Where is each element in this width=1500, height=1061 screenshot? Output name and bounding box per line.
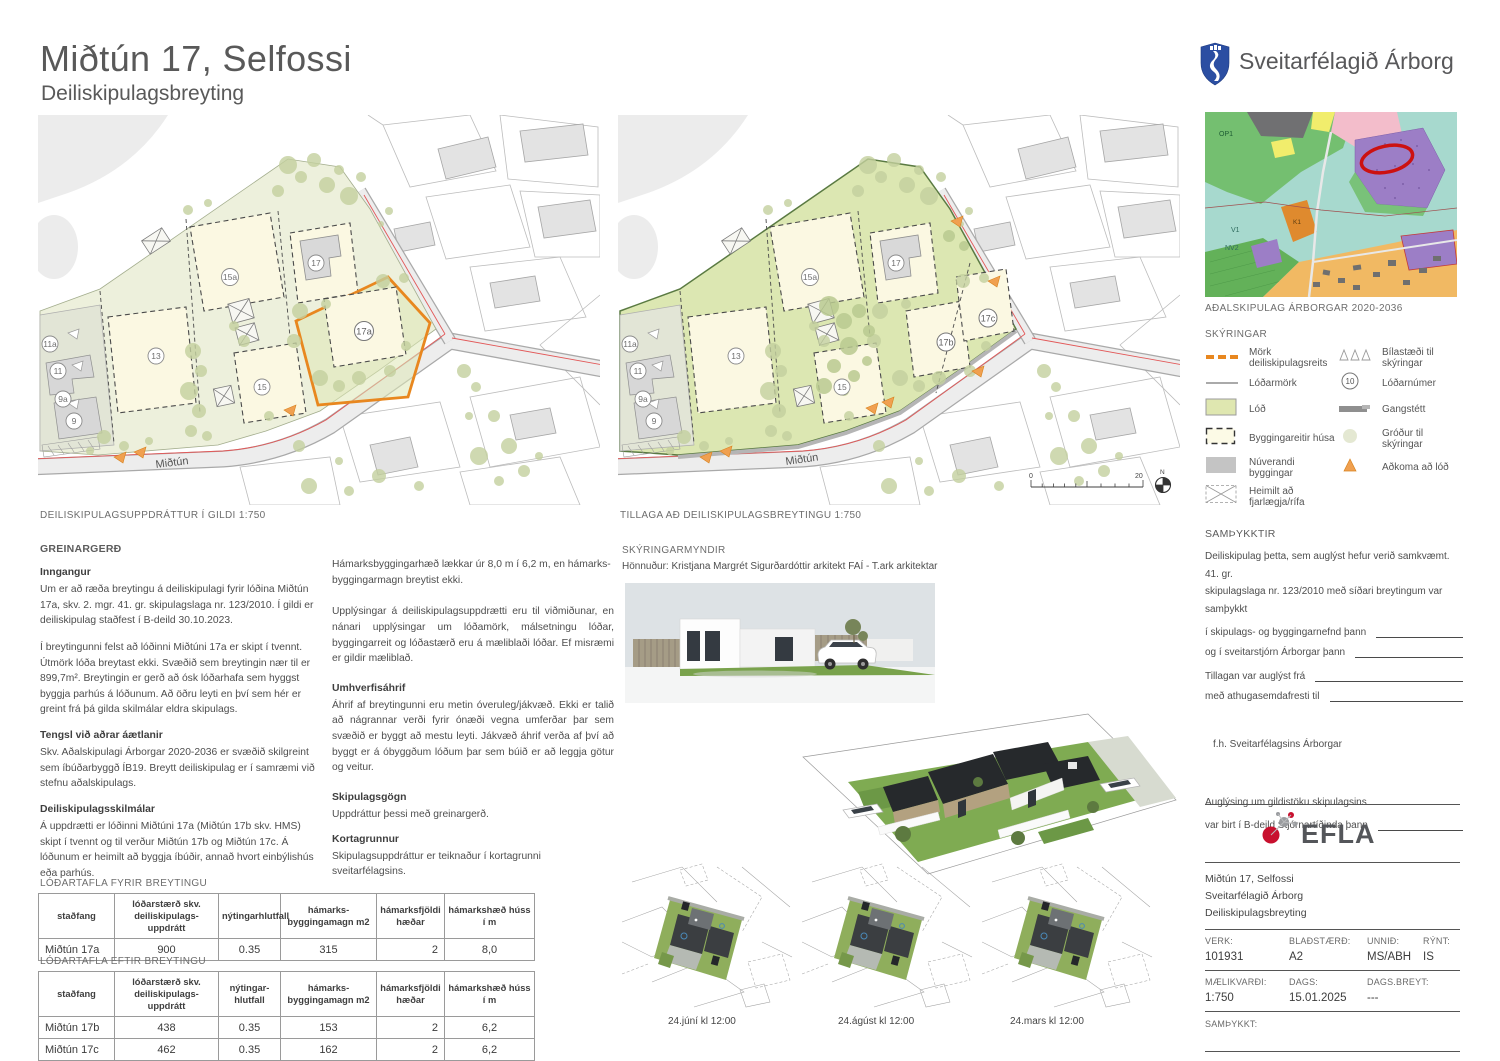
svg-text:15: 15 — [837, 382, 847, 392]
car — [843, 804, 883, 818]
svg-text:NV2: NV2 — [1225, 245, 1239, 252]
map-proposal: 11a 11 9a 9 13 15a 15 17 17b 17c Miðtún — [618, 115, 1180, 510]
titleblock-doctype: Deiliskipulagsbreyting — [1205, 905, 1460, 922]
svg-text:11: 11 — [634, 366, 643, 376]
legend-item: Aðkoma að lóð — [1338, 459, 1460, 476]
lot-line-icon — [1205, 375, 1241, 393]
map-masterplan: OP1 V1 NV2 K1 — [1205, 112, 1457, 302]
table-row: Miðtún 17c 462 0.35 162 2 6,2 — [39, 1039, 535, 1061]
svg-text:K1: K1 — [1293, 219, 1301, 226]
legend-item: Byggingareitir húsa — [1205, 430, 1337, 447]
svg-text:17: 17 — [311, 258, 321, 268]
north-arrow-icon — [1156, 478, 1171, 493]
legend-left-column: Mörk deiliskipulagsreits Lóðarmörk Lóð B… — [1205, 349, 1337, 514]
svg-text:0: 0 — [1029, 473, 1033, 480]
renderings-credit: Hönnuður: Kristjana Margrét Sigurðardótt… — [622, 561, 938, 572]
svg-text:11a: 11a — [623, 339, 637, 349]
signature-line — [1315, 668, 1463, 682]
legend-item: Bílastæði til skýringar — [1338, 349, 1460, 366]
svg-text:9: 9 — [652, 416, 657, 426]
approvals-line: skipulagslaga nr. 123/2010 með síðari br… — [1205, 583, 1463, 618]
approvals-title: SAMÞYKKTIR — [1205, 528, 1463, 540]
svg-text:13: 13 — [731, 351, 741, 361]
report-heading: Deiliskipulagsskilmálar — [40, 804, 320, 815]
title-block: EFLA Miðtún 17, Selfossi Sveitarfélagið … — [1205, 804, 1460, 1052]
efla-logo: EFLA — [1205, 805, 1460, 862]
sun-study-caption: 24.mars kl 12:00 — [1010, 1016, 1084, 1027]
rendering-aerial-view — [788, 712, 1180, 882]
report-heading: Skipulagsgögn — [332, 792, 614, 803]
parking-triangles-icon — [1338, 348, 1374, 367]
access-triangle-icon — [1338, 457, 1374, 478]
reviewed-by: IS — [1423, 951, 1460, 963]
svg-text:11: 11 — [54, 366, 63, 376]
svg-text:15a: 15a — [803, 272, 817, 282]
legend-item: Lóðarmörk — [1205, 375, 1337, 392]
legend-item: Gangstétt — [1338, 401, 1460, 418]
sun-study-march — [982, 862, 1157, 1015]
plan-sheet: Miðtún 17, Selfossi Deiliskipulagsbreyti… — [0, 0, 1500, 1061]
svg-text:17b: 17b — [938, 338, 953, 348]
drawn-by: MS/ABH — [1367, 951, 1423, 963]
project-number: 101931 — [1205, 951, 1289, 963]
plan-boundary-dash-icon — [1205, 349, 1241, 367]
report-paragraph: Uppdráttur þessi með greinargerð. — [332, 807, 614, 823]
lot-number-icon: 10 — [1338, 371, 1374, 396]
municipality-shield-icon — [1199, 42, 1231, 91]
legend-item: Mörk deiliskipulagsreits — [1205, 349, 1337, 366]
svg-text:9a: 9a — [58, 394, 68, 404]
report-heading: Inngangur — [40, 567, 320, 578]
svg-text:10: 10 — [1346, 377, 1355, 386]
sheet-size: A2 — [1289, 951, 1367, 963]
signature-row: og í sveitarstjórn Árborgar þann — [1205, 644, 1463, 658]
report-paragraph: Um er að ræða breytingu á deiliskipulagi… — [40, 582, 320, 629]
svg-text:15: 15 — [257, 382, 267, 392]
signature-row: með athugasemdafresti til — [1205, 688, 1463, 702]
svg-text:17: 17 — [891, 258, 901, 268]
sun-study-caption: 24.ágúst kl 12:00 — [838, 1016, 914, 1027]
map-masterplan-caption: AÐALSKIPULAG ÁRBORGAR 2020-2036 — [1205, 303, 1403, 314]
signature-line — [1330, 688, 1463, 702]
scale: 1:750 — [1205, 992, 1289, 1004]
approvals-block: SAMÞYKKTIR Deiliskipulag þetta, sem augl… — [1205, 528, 1463, 831]
report-column-2: Hámarksbyggingarhæð lækkar úr 8,0 m í 6,… — [332, 557, 614, 891]
legend-item: Heimilt að fjarlægja/rífa — [1205, 488, 1337, 505]
report-title: GREINARGERÐ — [40, 543, 320, 555]
legend-title: SKÝRINGAR — [1205, 329, 1267, 340]
approved-label: SAMÞYKKT: — [1205, 1019, 1460, 1029]
report-column-1: GREINARGERÐ Inngangur Um er að ræða brey… — [40, 543, 320, 893]
map-valid-plan-caption: DEILISKIPULAGSUPPDRÁTTUR Í GILDI 1:750 — [40, 510, 266, 521]
report-paragraph: Upplýsingar á deiliskipulagsuppdrætti er… — [332, 604, 614, 667]
page-subtitle: Deiliskipulagsbreyting — [41, 82, 244, 106]
sun-study-august — [802, 862, 977, 1015]
report-paragraph: Í breytingunni felst að lóðinni Miðtúni … — [40, 640, 320, 718]
approvals-line: Deiliskipulag þetta, sem auglýst hefur v… — [1205, 548, 1463, 583]
report-heading: Tengsl við aðrar áætlanir — [40, 730, 320, 741]
report-heading: Umhverfisáhrif — [332, 683, 614, 694]
table-after-title: LÓÐARTAFLA EFTIR BREYTINGU — [40, 956, 206, 967]
svg-text:15a: 15a — [223, 272, 237, 282]
vegetation-icon — [1338, 427, 1374, 450]
rendering-street-view — [625, 583, 935, 708]
legend-right-column: Bílastæði til skýringar 10 Lóðarnúmer Ga… — [1338, 349, 1460, 485]
svg-text:9: 9 — [72, 416, 77, 426]
svg-text:N: N — [1160, 469, 1165, 476]
sun-study-june — [622, 862, 797, 1015]
revision-date: --- — [1367, 992, 1460, 1004]
report-paragraph: Hámarksbyggingarhæð lækkar úr 8,0 m í 6,… — [332, 557, 614, 588]
svg-text:11a: 11a — [43, 339, 57, 349]
report-paragraph: Á uppdrætti er lóðinni Miðtúni 17a (Miðt… — [40, 819, 320, 882]
legend-item: Gróður til skýringar — [1338, 430, 1460, 447]
titleblock-client: Sveitarfélagið Árborg — [1205, 888, 1460, 905]
table-header-row: staðfang lóðarstærð skv. deiliskipulags-… — [39, 972, 535, 1017]
signature-line — [1376, 624, 1463, 638]
svg-text:V1: V1 — [1231, 227, 1240, 234]
report-paragraph: Skipulagsuppdráttur er teiknaður í korta… — [332, 849, 614, 880]
svg-text:9a: 9a — [638, 394, 648, 404]
date: 15.01.2025 — [1289, 992, 1367, 1004]
demolish-allowed-icon — [1205, 484, 1241, 509]
signature-row: Tillagan var auglýst frá — [1205, 668, 1463, 682]
page-title: Miðtún 17, Selfossi — [40, 38, 352, 80]
sidewalk-icon — [1338, 401, 1374, 419]
legend-item: 10 Lóðarnúmer — [1338, 375, 1460, 392]
svg-text:17a: 17a — [356, 327, 373, 338]
table-before-title: LÓÐARTAFLA FYRIR BREYTINGU — [40, 878, 207, 889]
svg-text:20: 20 — [1135, 473, 1143, 480]
approvals-onbehalf: f.h. Sveitarfélagsins Árborgar — [1205, 736, 1463, 754]
lot-table-before: staðfang lóðarstærð skv. deiliskipulags-… — [38, 893, 535, 961]
report-paragraph: Áhrif af breytingunni eru metin óveruleg… — [332, 698, 614, 776]
lot-table-after: staðfang lóðarstærð skv. deiliskipulags-… — [38, 971, 535, 1061]
svg-text:13: 13 — [151, 351, 161, 361]
building-plot-swatch — [1205, 427, 1241, 450]
report-heading: Kortagrunnur — [332, 834, 614, 845]
existing-building-swatch — [1205, 456, 1241, 479]
titleblock-project: Miðtún 17, Selfossi — [1205, 871, 1460, 888]
renderings-title: SKÝRINGARMYNDIR — [622, 545, 726, 556]
municipality-name: Sveitarfélagið Árborg — [1239, 48, 1454, 75]
svg-text:17c: 17c — [981, 314, 996, 324]
signature-line — [1355, 644, 1463, 658]
map-valid-plan: 11a 11 9a 9 13 15a 15 17 17a Miðtún — [38, 115, 600, 510]
svg-text:OP1: OP1 — [1219, 131, 1233, 138]
signature-row: í skipulags- og byggingarnefnd þann — [1205, 624, 1463, 638]
report-paragraph: Skv. Aðalskipulagi Árborgar 2020-2036 er… — [40, 745, 320, 792]
sun-study-caption: 24.júní kl 12:00 — [668, 1016, 736, 1027]
svg-text:EFLA: EFLA — [1301, 819, 1376, 849]
map-proposal-caption: TILLAGA AÐ DEILISKIPULAGSBREYTINGU 1:750 — [620, 510, 861, 521]
legend-item: Núverandi byggingar — [1205, 459, 1337, 476]
legend-item: Lóð — [1205, 401, 1337, 418]
lot-fill-swatch — [1205, 398, 1241, 421]
table-header-row: staðfang lóðarstærð skv. deiliskipulags-… — [39, 894, 535, 939]
table-row: Miðtún 17b 438 0.35 153 2 6,2 — [39, 1017, 535, 1039]
